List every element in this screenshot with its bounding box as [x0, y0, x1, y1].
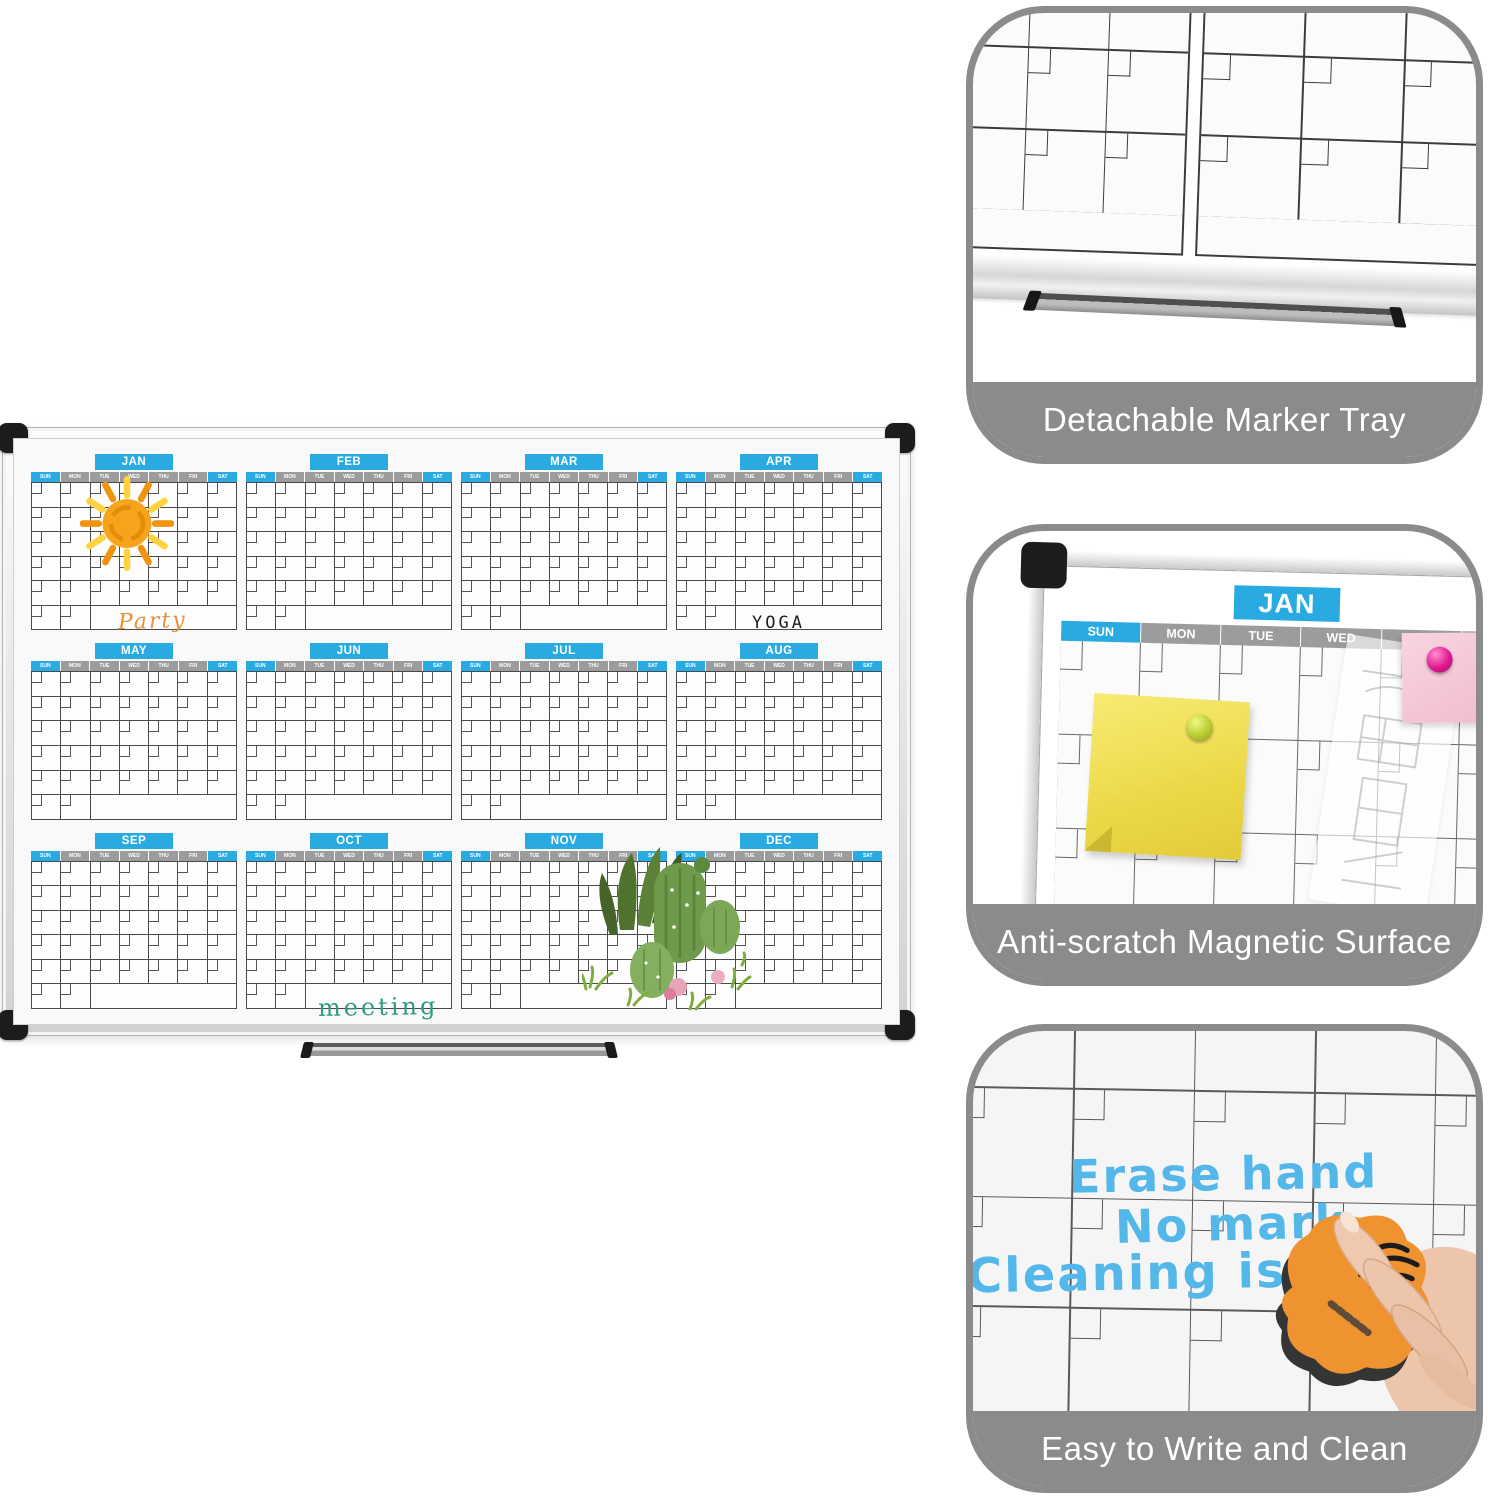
date-cell: [823, 862, 851, 886]
date-notch: [335, 886, 345, 897]
date-cell: [462, 557, 490, 581]
date-notch: [1402, 143, 1430, 169]
date-cell: [462, 697, 490, 721]
date-cell: [364, 697, 392, 721]
date-cell: [521, 935, 549, 959]
date-notch: [706, 795, 716, 806]
date-cell: [32, 960, 60, 984]
day-label-tue: TUE: [735, 472, 764, 482]
date-notch: [276, 746, 286, 757]
month-tab-jul: JUL: [525, 643, 603, 659]
date-notch: [736, 508, 746, 519]
date-notch: [149, 960, 159, 971]
date-notch: [462, 721, 472, 732]
date-cell: [364, 508, 392, 532]
date-cell: [276, 771, 304, 795]
date-cell: [276, 508, 304, 532]
date-cell: [736, 771, 764, 795]
date-notch: [335, 862, 345, 873]
day-label-tue: TUE: [90, 661, 119, 671]
date-notch: [91, 721, 101, 732]
date-notch: [579, 721, 589, 732]
date-notch: [1055, 829, 1077, 858]
date-notch: [736, 771, 746, 782]
day-label-fri: FRI: [609, 472, 638, 482]
date-notch: [423, 746, 433, 757]
date-cell: [638, 508, 666, 532]
date-cell: [521, 911, 549, 935]
grid-cell: [973, 1031, 1075, 1088]
date-cell: [423, 746, 451, 770]
grid-cell: [1302, 58, 1404, 142]
date-notch: [765, 557, 775, 568]
date-cell: [765, 960, 793, 984]
date-cell: [579, 581, 607, 605]
date-notch: [178, 911, 188, 922]
date-cell: [91, 721, 119, 745]
date-cell: [491, 886, 519, 910]
date-cell: [306, 532, 334, 556]
date-notch: [306, 581, 316, 592]
date-cell: [823, 886, 851, 910]
board-corner-scene: JAN SUNMONTUEWEDTHUFRISAT: [973, 531, 1476, 904]
date-notch: [247, 862, 257, 873]
date-notch: [794, 771, 804, 782]
date-cell: [462, 606, 490, 630]
date-notch: [491, 911, 501, 922]
date-notch: [550, 508, 560, 519]
day-label-mon: MON: [706, 661, 735, 671]
handwritten-note-party: Party: [118, 608, 188, 635]
date-cell: [736, 532, 764, 556]
marker-tray-closeup: [973, 13, 1476, 382]
date-notch: [393, 508, 403, 519]
date-notch: [521, 886, 531, 897]
date-cell: [247, 581, 275, 605]
day-label-sun: SUN: [461, 661, 490, 671]
date-cell: [765, 911, 793, 935]
date-cell: [491, 960, 519, 984]
month-block-jul: JULSUNMONTUEWEDTHUFRISAT: [461, 643, 667, 819]
date-cell: [736, 483, 764, 507]
date-cell: [393, 532, 421, 556]
date-notch: [247, 771, 257, 782]
date-cell: [677, 672, 705, 696]
date-notch: [677, 606, 687, 617]
date-cell: [149, 672, 177, 696]
date-notch: [853, 672, 863, 683]
date-notch: [706, 581, 716, 592]
date-notch: [853, 746, 863, 757]
day-label-sat: SAT: [423, 851, 452, 861]
date-notch: [765, 697, 775, 708]
date-notch: [178, 697, 188, 708]
date-cell: [736, 746, 764, 770]
date-notch: [208, 697, 218, 708]
date-notch: [364, 532, 374, 543]
date-notch: [208, 557, 218, 568]
date-notch: [1315, 1093, 1346, 1124]
date-notch: [276, 508, 286, 519]
date-notch: [579, 746, 589, 757]
date-cell: [393, 746, 421, 770]
date-cell: [61, 886, 89, 910]
date-cell: [794, 581, 822, 605]
date-cell: [794, 960, 822, 984]
day-label-sun: SUN: [31, 661, 60, 671]
date-notch: [149, 771, 159, 782]
day-label-mon: MON: [1141, 623, 1221, 645]
date-cell: [423, 771, 451, 795]
date-notch: [608, 508, 618, 519]
date-notch: [1304, 58, 1332, 84]
date-cell: [393, 771, 421, 795]
date-cell: [178, 746, 206, 770]
day-label-sat: SAT: [638, 472, 667, 482]
date-cell: [247, 483, 275, 507]
date-notch: [149, 697, 159, 708]
merged-notes-cell: [736, 795, 881, 819]
date-notch: [208, 911, 218, 922]
date-cell: [765, 672, 793, 696]
date-cell: [462, 984, 490, 1008]
date-cell: [853, 557, 881, 581]
day-label-mon: MON: [276, 661, 305, 671]
date-notch: [32, 886, 42, 897]
date-cell: [462, 581, 490, 605]
day-label-wed: WED: [765, 851, 794, 861]
date-cell: [149, 886, 177, 910]
date-cell: [823, 672, 851, 696]
date-cell: [276, 483, 304, 507]
day-strip: SUNMONTUEWEDTHUFRISAT: [676, 472, 882, 482]
date-notch: [823, 697, 833, 708]
date-cell: [706, 697, 734, 721]
date-cell: [706, 795, 734, 819]
date-notch: [1106, 133, 1128, 159]
date-cell: [706, 532, 734, 556]
date-cell: [608, 721, 636, 745]
feature-panel-magnetic-surface: JAN SUNMONTUEWEDTHUFRISAT: [966, 524, 1483, 986]
date-notch: [550, 911, 560, 922]
whiteboard-grid-closeup: [973, 13, 1476, 267]
date-notch: [853, 508, 863, 519]
date-cell: [823, 483, 851, 507]
date-cell: [736, 721, 764, 745]
date-notch: [1298, 741, 1320, 770]
date-notch: [276, 862, 286, 873]
date-notch: [208, 960, 218, 971]
month-tab-mar: MAR: [525, 454, 603, 470]
date-cell: [823, 508, 851, 532]
date-cell: [247, 960, 275, 984]
date-notch: [149, 672, 159, 683]
date-cell: [335, 886, 363, 910]
date-cell: [794, 672, 822, 696]
day-label-mon: MON: [276, 472, 305, 482]
day-strip: SUNMONTUEWEDTHUFRISAT: [246, 661, 452, 671]
date-cell: [550, 483, 578, 507]
date-cell: [208, 508, 236, 532]
date-cell: [247, 935, 275, 959]
date-notch: [393, 911, 403, 922]
date-cell: [276, 960, 304, 984]
date-notch: [306, 557, 316, 568]
date-cell: [364, 886, 392, 910]
date-notch: [149, 581, 159, 592]
date-cell: [677, 508, 705, 532]
month-grid: [246, 671, 452, 819]
date-cell: [608, 483, 636, 507]
day-label-fri: FRI: [609, 661, 638, 671]
date-cell: [823, 697, 851, 721]
date-notch: [393, 960, 403, 971]
date-notch: [32, 557, 42, 568]
merged-notes-cell: [521, 795, 666, 819]
date-notch: [247, 532, 257, 543]
date-notch: [276, 532, 286, 543]
date-cell: [247, 532, 275, 556]
date-notch: [794, 483, 804, 494]
month-grid: [246, 861, 452, 1009]
date-notch: [677, 771, 687, 782]
date-notch: [579, 532, 589, 543]
grid-cells: [973, 13, 1191, 216]
merged-notes-cell: [91, 984, 236, 1008]
date-notch: [178, 862, 188, 873]
date-notch: [677, 746, 687, 757]
day-strip: SUNMONTUEWEDTHUFRISAT: [31, 661, 237, 671]
date-notch: [423, 508, 433, 519]
date-notch: [706, 672, 716, 683]
date-notch: [765, 721, 775, 732]
date-cell: [677, 721, 705, 745]
date-cell: [120, 862, 148, 886]
date-notch: [579, 697, 589, 708]
date-notch: [736, 532, 746, 543]
date-notch: [491, 795, 501, 806]
date-notch: [208, 771, 218, 782]
date-cell: [306, 862, 334, 886]
date-cell: [247, 606, 275, 630]
date-cell: [247, 557, 275, 581]
date-cell: [462, 483, 490, 507]
date-notch: [276, 581, 286, 592]
date-notch: [462, 935, 472, 946]
date-notch: [364, 721, 374, 732]
date-cell: [276, 672, 304, 696]
day-label-wed: WED: [550, 472, 579, 482]
month-tab-may: MAY: [95, 643, 173, 659]
date-cell: [178, 697, 206, 721]
date-cell: [276, 862, 304, 886]
day-label-thu: THU: [794, 851, 823, 861]
magnetic-surface-closeup: JAN SUNMONTUEWEDTHUFRISAT: [973, 531, 1476, 904]
date-cell: [491, 508, 519, 532]
date-cell: [550, 721, 578, 745]
date-cell: [521, 697, 549, 721]
date-notch: [335, 532, 345, 543]
date-cell: [208, 721, 236, 745]
date-notch: [178, 721, 188, 732]
date-notch: [736, 483, 746, 494]
date-notch: [91, 935, 101, 946]
date-cell: [178, 911, 206, 935]
date-cell: [335, 721, 363, 745]
day-label-fri: FRI: [179, 661, 208, 671]
date-notch: [149, 746, 159, 757]
date-cell: [579, 771, 607, 795]
month-block-apr: APRSUNMONTUEWEDTHUFRISAT: [676, 454, 882, 630]
product-image-canvas: JANSUNMONTUEWEDTHUFRISATFEBSUNMONTUEWEDT…: [0, 0, 1488, 1500]
date-cell: [823, 771, 851, 795]
date-cell: [120, 746, 148, 770]
date-notch: [149, 886, 159, 897]
date-notch: [521, 697, 531, 708]
date-cell: [462, 746, 490, 770]
calendar-whiteboard: JANSUNMONTUEWEDTHUFRISATFEBSUNMONTUEWEDT…: [2, 427, 911, 1036]
merged-notes-cell: [306, 606, 451, 630]
day-label-mon: MON: [61, 661, 90, 671]
date-cell: [178, 672, 206, 696]
day-label-thu: THU: [364, 661, 393, 671]
date-cell: [853, 862, 881, 886]
date-cell: [393, 886, 421, 910]
date-cell: [393, 557, 421, 581]
date-notch: [335, 960, 345, 971]
date-notch: [491, 721, 501, 732]
date-notch: [550, 886, 560, 897]
date-notch: [550, 746, 560, 757]
date-cell: [178, 581, 206, 605]
date-notch: [32, 532, 42, 543]
grid-cell: [1400, 143, 1476, 227]
date-notch: [491, 581, 501, 592]
date-notch: [853, 911, 863, 922]
day-label-sat: SAT: [423, 661, 452, 671]
date-notch: [247, 672, 257, 683]
date-notch: [393, 886, 403, 897]
grid-cell: [1107, 51, 1188, 134]
day-label-thu: THU: [364, 851, 393, 861]
date-notch: [247, 746, 257, 757]
date-notch: [364, 886, 374, 897]
grid-cell: [1454, 839, 1476, 904]
date-notch: [208, 746, 218, 757]
date-cell: [462, 862, 490, 886]
date-notch: [462, 483, 472, 494]
date-notch: [794, 886, 804, 897]
date-cell: [491, 672, 519, 696]
date-notch: [32, 721, 42, 732]
date-notch: [462, 746, 472, 757]
date-notch: [276, 672, 286, 683]
date-notch: [765, 862, 775, 873]
date-notch: [677, 557, 687, 568]
date-notch: [1405, 61, 1433, 87]
date-cell: [608, 746, 636, 770]
date-cell: [765, 862, 793, 886]
grid-cell: [1110, 13, 1191, 52]
date-notch: [276, 606, 286, 617]
date-notch: [823, 746, 833, 757]
date-cell: [550, 557, 578, 581]
date-cell: [91, 911, 119, 935]
date-notch: [306, 862, 316, 873]
date-notch: [765, 911, 775, 922]
date-notch: [149, 911, 159, 922]
date-notch: [364, 935, 374, 946]
date-cell: [823, 960, 851, 984]
date-cell: [677, 557, 705, 581]
grid-cell: [1198, 136, 1300, 220]
date-cell: [149, 960, 177, 984]
date-notch: [120, 886, 130, 897]
grid-cell: [1403, 61, 1476, 145]
date-notch: [247, 697, 257, 708]
date-cell: [178, 721, 206, 745]
date-notch: [32, 795, 42, 806]
date-cell: [608, 672, 636, 696]
date-cell: [178, 771, 206, 795]
date-cell: [364, 911, 392, 935]
date-cell: [335, 581, 363, 605]
feature-panel-write-clean: Erase hand No mark Cleaning is m: [966, 1024, 1483, 1493]
date-notch: [1140, 643, 1162, 672]
date-cell: [61, 721, 89, 745]
date-notch: [335, 721, 345, 732]
date-cell: [208, 746, 236, 770]
date-cell: [462, 886, 490, 910]
date-notch: [276, 483, 286, 494]
date-cell: [579, 746, 607, 770]
date-cell: [638, 746, 666, 770]
date-notch: [149, 862, 159, 873]
date-cell: [61, 771, 89, 795]
date-notch: [247, 984, 257, 995]
date-cell: [550, 960, 578, 984]
date-notch: [364, 862, 374, 873]
date-notch: [550, 960, 560, 971]
date-notch: [393, 697, 403, 708]
date-notch: [462, 886, 472, 897]
cactus-drawing: [582, 835, 752, 1015]
date-notch: [521, 508, 531, 519]
date-notch: [61, 795, 71, 806]
date-notch: [32, 606, 42, 617]
date-cell: [491, 935, 519, 959]
date-cell: [765, 532, 793, 556]
date-notch: [491, 697, 501, 708]
date-cell: [208, 483, 236, 507]
date-notch: [638, 746, 648, 757]
date-notch: [178, 557, 188, 568]
date-notch: [306, 911, 316, 922]
date-notch: [1458, 745, 1476, 774]
date-cell: [423, 721, 451, 745]
date-cell: [491, 746, 519, 770]
day-strip: SUNMONTUEWEDTHUFRISAT: [246, 851, 452, 861]
date-notch: [423, 935, 433, 946]
date-cell: [32, 697, 60, 721]
date-notch: [638, 508, 648, 519]
date-notch: [91, 862, 101, 873]
date-notch: [608, 697, 618, 708]
date-cell: [550, 746, 578, 770]
date-notch: [1200, 136, 1228, 162]
month-tab-apr: APR: [740, 454, 818, 470]
date-cell: [276, 911, 304, 935]
